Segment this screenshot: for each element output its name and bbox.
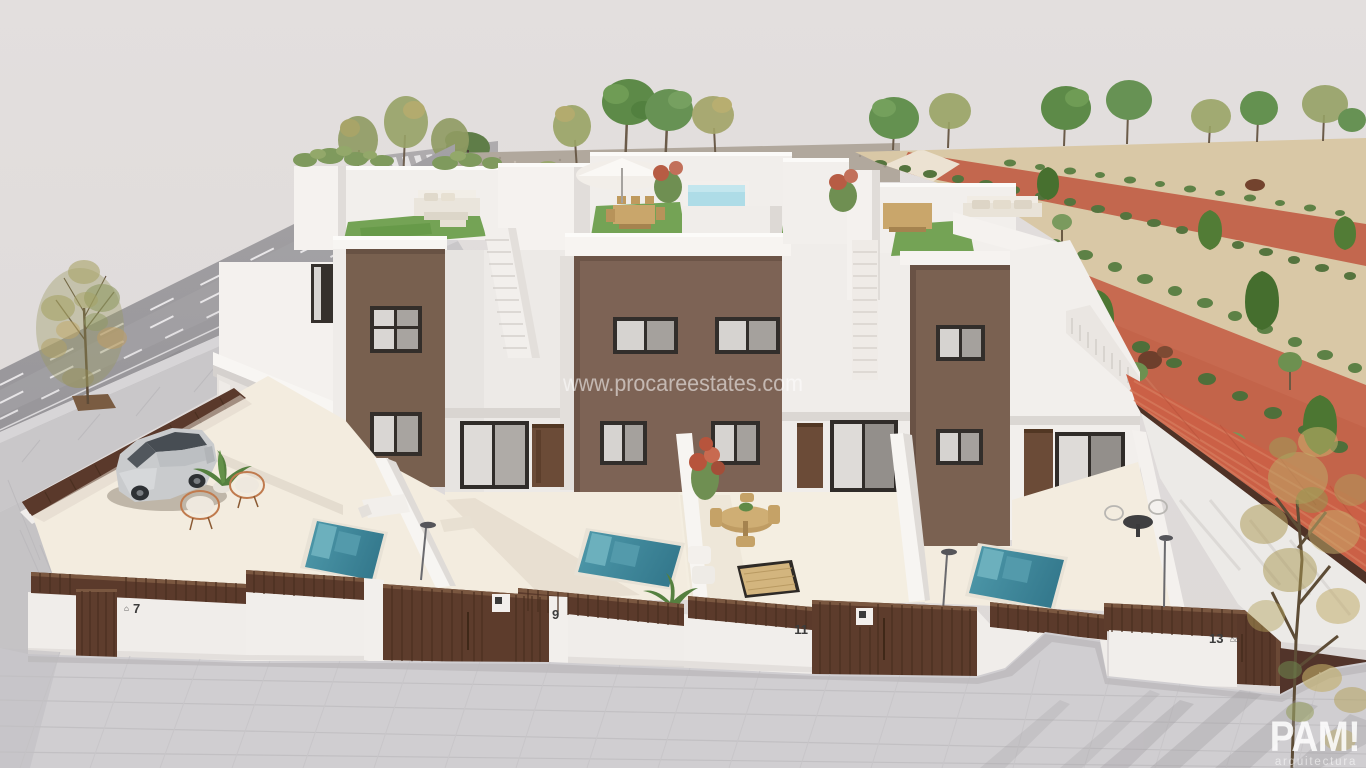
svg-text:arquitectura: arquitectura: [1275, 756, 1357, 768]
svg-text:⌂⌂: ⌂⌂: [1230, 635, 1240, 644]
svg-text:PAM!: PAM!: [1270, 714, 1360, 761]
svg-text:11: 11: [794, 622, 808, 637]
svg-text:13: 13: [1209, 631, 1223, 646]
svg-text:7: 7: [133, 601, 140, 616]
svg-text:9: 9: [552, 607, 559, 622]
svg-text:⌂: ⌂: [124, 604, 129, 613]
svg-text:www.procareestates.com: www.procareestates.com: [562, 370, 803, 396]
